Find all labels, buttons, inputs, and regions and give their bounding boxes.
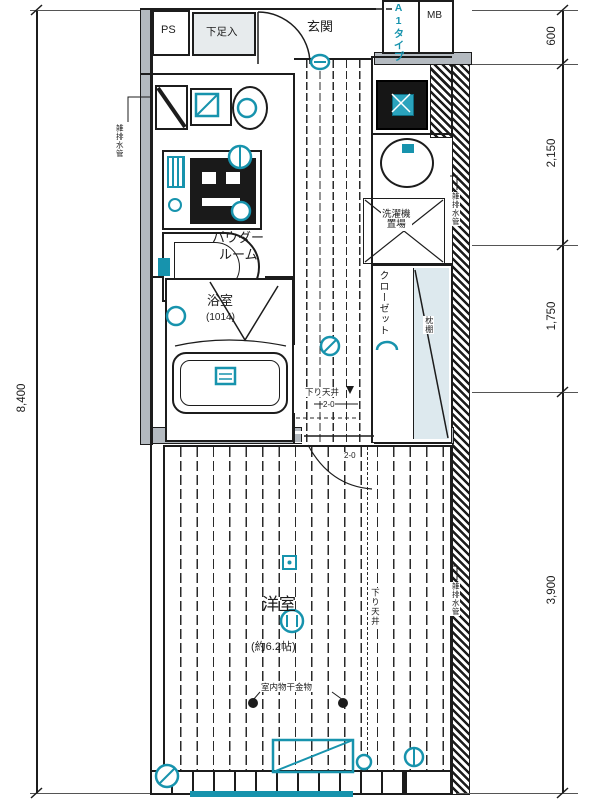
- lowered-ceiling-boundary: [367, 447, 368, 770]
- burner-icon: [202, 172, 216, 184]
- toilet-bowl: [232, 86, 268, 130]
- dim-line-right: [562, 10, 564, 793]
- hallway-floor: [294, 60, 372, 443]
- vanity-faucet-icon: [158, 258, 170, 276]
- fixture-box: [376, 80, 428, 130]
- dim-ext-r2: [472, 64, 578, 65]
- dim-ext-top-left: [30, 10, 140, 11]
- right-room-wall-2: [372, 133, 452, 135]
- ceiling-marker-hall: 2-0: [323, 401, 335, 410]
- right-room-wall-1: [372, 56, 452, 58]
- western-room-label: 洋室: [262, 596, 296, 615]
- washbasin: [380, 138, 434, 188]
- closet-shelf-label: 枕棚: [423, 316, 434, 334]
- dim-ext-r3: [472, 245, 578, 246]
- washer-pan-icon: [392, 94, 414, 116]
- toilet-top-wall: [140, 73, 294, 75]
- powder-room-label-2: ルーム: [219, 248, 258, 262]
- closet-shelf-area: [413, 268, 449, 439]
- left-shaft: [155, 85, 188, 130]
- dim-1750: 1,750: [546, 281, 558, 351]
- dim-overall: 8,400: [16, 363, 28, 433]
- dim-ext-r5: [456, 793, 578, 794]
- shaft-wall-upper-right: [430, 64, 452, 138]
- kitchen-unit: [162, 150, 262, 230]
- bathtub: [172, 352, 288, 414]
- pipe-label-right-bottom: 雑排水管: [450, 582, 460, 616]
- washer-space-box: [363, 198, 445, 264]
- lowered-ceiling-hall-label: 下り天井: [305, 388, 339, 397]
- dim-ext-r4: [472, 392, 578, 393]
- western-room-size-label: (約6.2帖): [251, 641, 296, 653]
- kitchen-counter-dark: [190, 158, 256, 224]
- bathtub-inner: [180, 360, 280, 406]
- lowered-ceiling-room-label: 下り天井: [369, 588, 380, 626]
- a1-type-label: A1タイプ: [392, 2, 404, 63]
- bathroom-size-label: (1014): [206, 312, 235, 323]
- kitchen-sink-icon: [167, 156, 185, 188]
- dim-2150: 2,150: [546, 118, 558, 188]
- mb-label: MB: [427, 10, 442, 21]
- dim-3900: 3,900: [546, 555, 558, 625]
- ceiling-marker-room: 2-0: [344, 452, 356, 461]
- pipe-label-right-top: 雑排水管: [450, 192, 460, 226]
- unit-left-boundary: [150, 8, 152, 795]
- burner-icon: [226, 172, 240, 184]
- entrance-label: 玄関: [307, 20, 333, 34]
- ps-label: PS: [161, 24, 176, 36]
- floor-plan: PS 下足入 玄関 A1タイプ MB パウダー ルーム 浴室 (1014): [0, 0, 600, 800]
- dim-line-left: [36, 10, 38, 794]
- indoor-laundry-hook-label: 室内物干金物: [260, 683, 313, 692]
- entrance-door-arc: [258, 12, 310, 64]
- meter-box: [418, 0, 454, 54]
- toilet-tank: [190, 88, 232, 126]
- dim-ext-r1: [472, 10, 578, 11]
- dim-ext-bottom-left: [30, 793, 150, 794]
- grill-icon: [202, 198, 240, 206]
- closet-label: クローゼット: [377, 270, 388, 336]
- window-sill-band-right: [405, 770, 452, 795]
- washer-label-line2: 置場: [387, 219, 406, 230]
- dim-600: 600: [546, 1, 558, 71]
- powder-room-label-1: パウダー: [212, 231, 264, 245]
- washbasin-faucet-icon: [402, 144, 414, 153]
- pipe-label-left: 雑排水管: [114, 124, 124, 158]
- bathroom-label: 浴室: [207, 294, 233, 308]
- western-room: [163, 445, 452, 772]
- window-line: [190, 791, 353, 797]
- washer-space-label: 洗濯機 置場: [381, 210, 412, 231]
- kitchen-faucet-icon: [168, 198, 182, 212]
- shoe-cabinet-label: 下足入: [206, 27, 238, 39]
- shared-wall-right: [452, 64, 470, 795]
